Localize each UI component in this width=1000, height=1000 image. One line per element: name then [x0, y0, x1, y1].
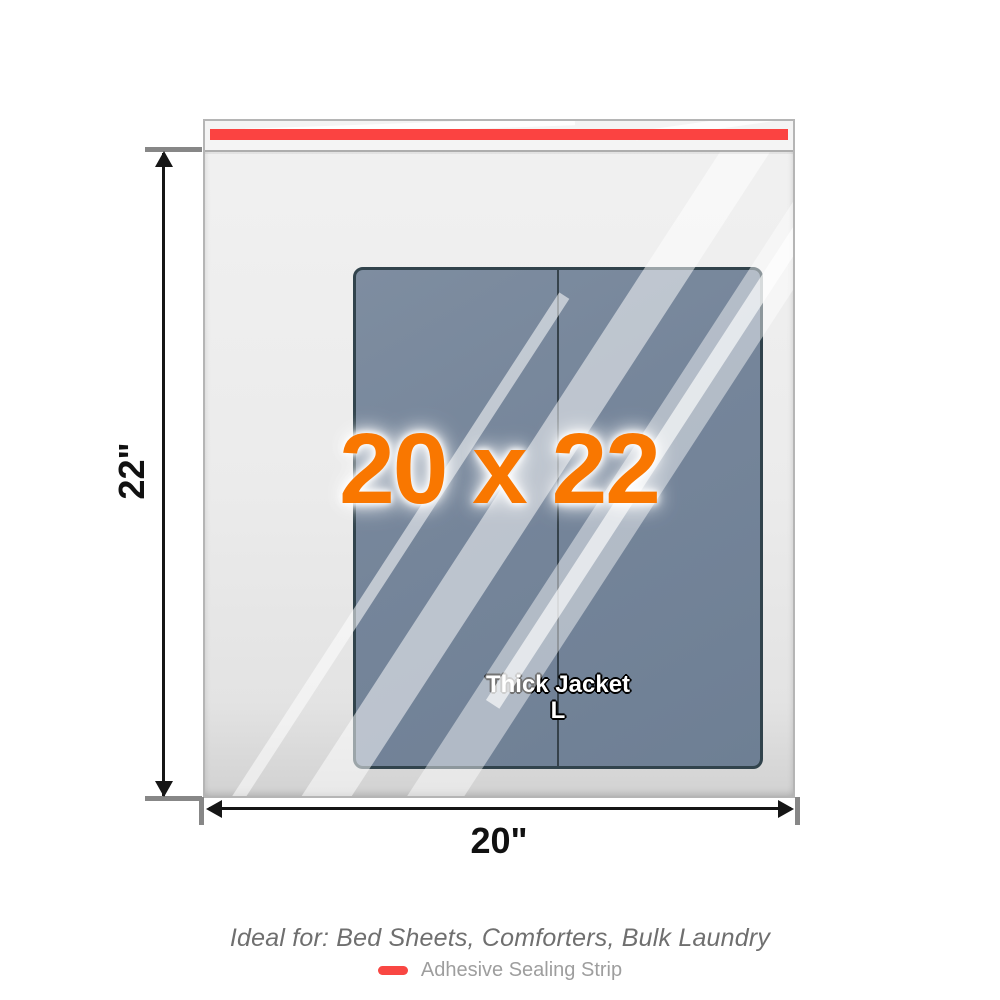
bag-flap [205, 121, 793, 152]
dimension-tick [145, 147, 202, 152]
product-illustration: Thick Jacket L 20 x 22 22" 20 [0, 0, 1000, 1000]
bag-size-text: 20 x 22 [205, 419, 793, 519]
arrow-right-icon [778, 800, 794, 818]
poly-bag: Thick Jacket L 20 x 22 [203, 119, 795, 798]
arrow-left-icon [206, 800, 222, 818]
legend: Adhesive Sealing Strip [0, 959, 1000, 982]
dimension-tick [145, 796, 202, 801]
adhesive-sealing-strip [210, 129, 788, 140]
width-dimension-label: 20" [203, 820, 795, 862]
dimension-line-horizontal [209, 807, 791, 810]
adhesive-strip-swatch-icon [378, 966, 408, 975]
dimension-tick [795, 797, 800, 825]
height-dimension-label: 22" [111, 427, 153, 515]
legend-label: Adhesive Sealing Strip [421, 959, 622, 982]
arrow-down-icon [155, 781, 173, 797]
arrow-up-icon [155, 151, 173, 167]
ideal-for-caption: Ideal for: Bed Sheets, Comforters, Bulk … [0, 924, 1000, 953]
dimension-line-vertical [162, 153, 165, 796]
